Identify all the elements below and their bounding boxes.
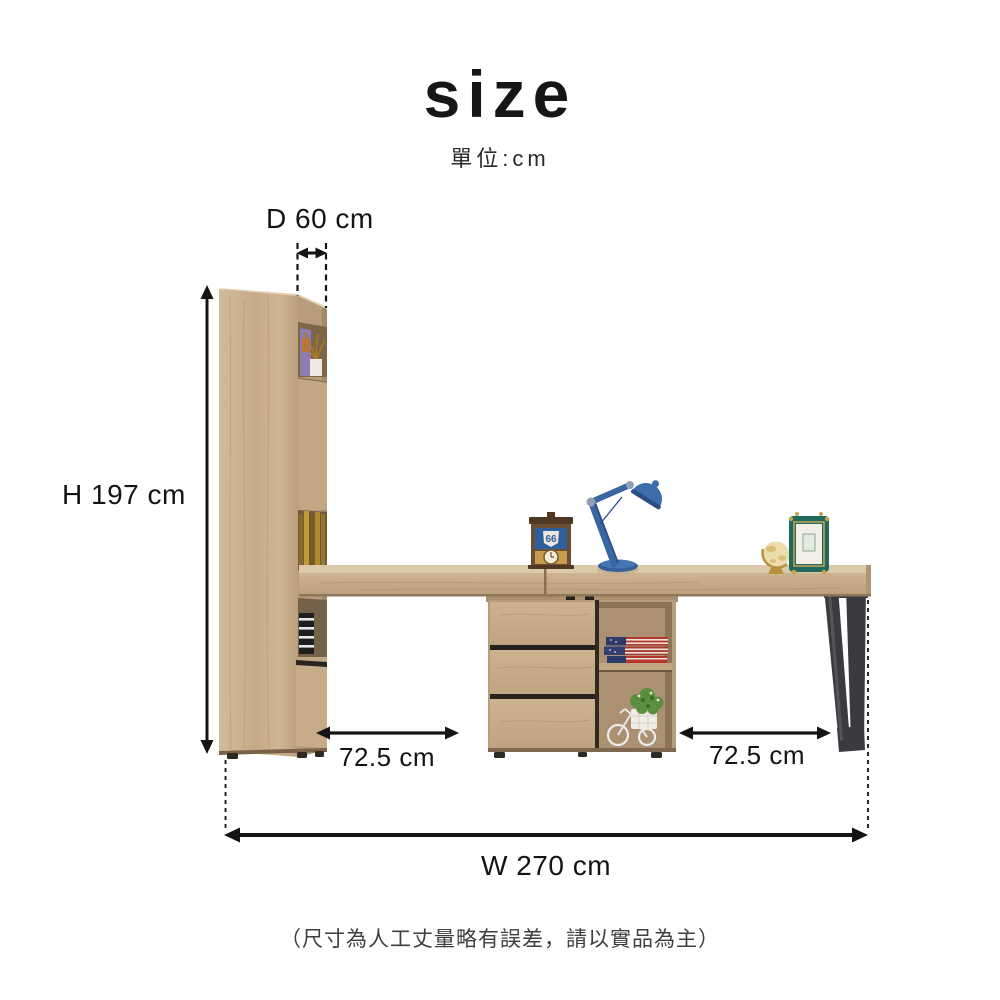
drawer-1	[490, 602, 595, 645]
depth-dimension-label: D 60 cm	[266, 203, 374, 235]
cabinet-foot	[578, 752, 587, 757]
shelf-shadow-right	[665, 602, 672, 748]
photo-frame	[789, 512, 829, 574]
middle-shelf	[599, 663, 672, 670]
unit-note: 單位:cm	[0, 141, 1000, 173]
drawer-gap	[490, 645, 595, 650]
cabinet-base-shadow	[488, 748, 676, 752]
drawer-3	[490, 699, 595, 748]
middle-shelf-shadow	[599, 670, 672, 672]
plant-pot	[310, 359, 322, 376]
total-width-dimension-label: W 270 cm	[436, 850, 656, 882]
bookcase-foot	[315, 751, 324, 757]
width-arrow	[224, 828, 868, 843]
open-shelf-cubby	[599, 602, 672, 748]
measurement-disclaimer: （尺寸為人工丈量略有誤差，請以實品為主）	[0, 923, 1000, 953]
left-span-arrow	[316, 727, 459, 740]
desk-end-cap	[866, 565, 871, 596]
leg-right-bar	[846, 588, 866, 744]
metal-sled-leg	[824, 586, 868, 752]
cabinet-foot	[651, 752, 662, 758]
page-title: size	[0, 58, 1000, 131]
lamp-head	[630, 472, 672, 510]
three-drawer-cabinet	[486, 590, 678, 758]
cabinet-divider	[595, 600, 599, 748]
bookcase-foot	[297, 752, 307, 758]
lamp-spring	[600, 497, 622, 524]
lamp-joint	[587, 498, 596, 507]
depth-arrow	[297, 248, 328, 259]
drawer-2	[490, 650, 595, 694]
right-span-arrow	[679, 727, 831, 740]
bookcase-foot	[227, 753, 238, 759]
shelf-shadow-top	[599, 602, 672, 608]
lamp-arm-lower-shade	[595, 503, 618, 563]
tall-bookcase	[219, 288, 327, 759]
frame-art	[803, 534, 815, 551]
lamp-joint	[626, 481, 634, 489]
clock-finial	[547, 512, 555, 517]
gold-books	[299, 511, 325, 568]
flag-books	[604, 637, 668, 663]
desk-top	[299, 565, 871, 597]
drawer-gap	[490, 694, 595, 699]
striped-box	[299, 613, 314, 654]
cabinet-foot	[494, 752, 505, 758]
height-arrow	[201, 285, 214, 754]
left-span-dimension-label: 72.5 cm	[339, 742, 435, 773]
height-dimension-label: H 197 cm	[62, 479, 186, 511]
clock-cap	[529, 517, 573, 524]
desk-seam	[544, 566, 547, 596]
desk-front-edge	[299, 573, 871, 596]
bookcase-door	[298, 377, 327, 510]
desk-lamp	[587, 472, 672, 574]
desk-under-shadow	[299, 594, 871, 597]
table-clock: 66	[528, 512, 574, 569]
right-span-dimension-label: 72.5 cm	[709, 740, 805, 771]
lamp-arm-upper	[591, 485, 630, 502]
clock-base	[528, 565, 574, 569]
clock-badge: 66	[545, 534, 557, 545]
size-diagram-page: 66	[0, 0, 1000, 1000]
